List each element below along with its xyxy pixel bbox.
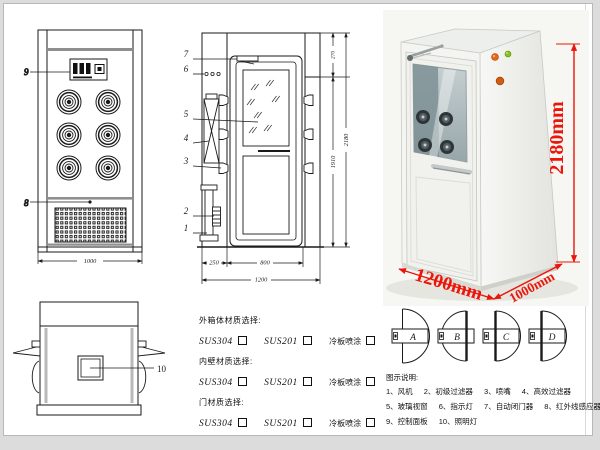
door-option-c[interactable]: C	[483, 311, 521, 361]
material-option-label: 冷板喷涂	[329, 337, 361, 346]
svg-text:C: C	[503, 333, 510, 343]
legend-line: 9、控制面板 10、照明灯	[386, 416, 594, 427]
material-section-title: 外箱体材质选择:	[199, 316, 385, 326]
cabinet-door	[406, 52, 477, 281]
material-checkbox[interactable]	[303, 336, 312, 345]
legend-item: 9、控制面板	[386, 417, 428, 426]
material-checkbox[interactable]	[303, 377, 312, 386]
svg-text:6: 6	[184, 64, 189, 74]
svg-text:250: 250	[209, 260, 219, 267]
door-swing-options: A B C D	[386, 298, 576, 372]
svg-text:4: 4	[184, 133, 189, 143]
legend-item: 2、初级过滤器	[424, 387, 473, 396]
svg-text:B: B	[454, 333, 460, 343]
material-checkbox[interactable]	[303, 418, 312, 427]
control-panel	[70, 59, 107, 80]
product-photo: 2180mm 1200mm 1000mm	[383, 10, 597, 308]
material-option-label: 冷板喷涂	[329, 378, 361, 387]
svg-text:5: 5	[184, 109, 189, 119]
air-return-grille	[55, 208, 126, 242]
material-section-title: 内壁材质选择:	[199, 357, 385, 367]
material-checkbox[interactable]	[366, 418, 375, 427]
dim-front-width: 1000	[38, 252, 142, 265]
legend-item: 4、高效过滤器	[522, 387, 571, 396]
material-row: SUS304 SUS201 冷板喷涂	[199, 372, 385, 390]
legend-item: 7、自动闭门器	[484, 402, 533, 411]
dim-height-label: 2180mm	[546, 101, 568, 175]
legend-item: 5、玻璃视窗	[386, 402, 428, 411]
technical-drawings: 9 8 1000	[0, 0, 385, 300]
material-option-label: SUS304	[199, 337, 233, 347]
legend: 图示说明: 1、风机 2、初级过滤器 3、喷嘴 4、高效过滤器 5、玻璃视窗 6…	[386, 372, 594, 431]
dims-side-bottom: 250 800 1200	[202, 247, 320, 284]
front-view: 9 8 1000	[24, 30, 142, 265]
front-top-band	[47, 48, 133, 51]
legend-line: 1、风机 2、初级过滤器 3、喷嘴 4、高效过滤器	[386, 386, 594, 397]
left-hinge-bracket	[13, 341, 40, 393]
material-checkbox[interactable]	[238, 418, 247, 427]
material-checkbox[interactable]	[238, 336, 247, 345]
material-checkbox[interactable]	[366, 377, 375, 386]
material-section-title: 门材质选择:	[199, 398, 385, 408]
legend-item: 10、照明灯	[439, 417, 477, 426]
svg-text:3: 3	[183, 156, 189, 166]
svg-text:270: 270	[331, 51, 337, 60]
legend-item: 6、指示灯	[439, 402, 473, 411]
material-row: SUS304 SUS201 冷板喷涂	[199, 331, 385, 349]
air-shower-cabinet	[401, 29, 558, 291]
material-selection: 外箱体材质选择: SUS304 SUS201 冷板喷涂 内壁材质选择: SUS3…	[199, 316, 385, 439]
callout-control-panel: 9	[24, 67, 29, 77]
material-option-label: SUS304	[199, 419, 233, 429]
material-option-label: SUS201	[264, 419, 298, 429]
material-option-label: SUS201	[264, 378, 298, 388]
legend-item: 1、风机	[386, 387, 413, 396]
svg-text:1: 1	[184, 223, 189, 233]
legend-item: 8、红外线感应器	[544, 402, 600, 411]
svg-text:1910: 1910	[330, 155, 337, 168]
svg-text:2: 2	[184, 206, 189, 216]
material-checkbox[interactable]	[238, 377, 247, 386]
svg-text:A: A	[409, 333, 416, 343]
top-view-drawing: 10	[5, 290, 185, 425]
svg-text:7: 7	[184, 49, 189, 59]
door-option-d[interactable]: D	[529, 311, 567, 361]
side-section-view: 7 6 5 4 3 2 1 250 800 1200	[183, 33, 350, 284]
svg-text:800: 800	[260, 260, 270, 267]
svg-text:2180: 2180	[343, 133, 350, 146]
material-option-label: SUS304	[199, 378, 233, 388]
legend-item: 3、喷嘴	[484, 387, 511, 396]
door-option-a[interactable]: A	[392, 309, 430, 363]
material-option-label: SUS201	[264, 337, 298, 347]
front-mid-band	[47, 197, 133, 200]
material-option-label: 冷板喷涂	[329, 419, 361, 428]
material-row: SUS304 SUS201 冷板喷涂	[199, 413, 385, 431]
legend-title: 图示说明:	[386, 372, 594, 383]
callout-window: 10	[157, 364, 167, 374]
legend-line: 5、玻璃视窗 6、指示灯 7、自动闭门器 8、红外线感应器	[386, 401, 594, 412]
door-option-b[interactable]: B	[438, 311, 474, 361]
material-checkbox[interactable]	[366, 336, 375, 345]
callout-ir-sensor: 8	[24, 198, 29, 208]
svg-text:D: D	[548, 333, 556, 343]
svg-text:1000: 1000	[84, 258, 97, 265]
svg-text:1200: 1200	[255, 277, 268, 284]
